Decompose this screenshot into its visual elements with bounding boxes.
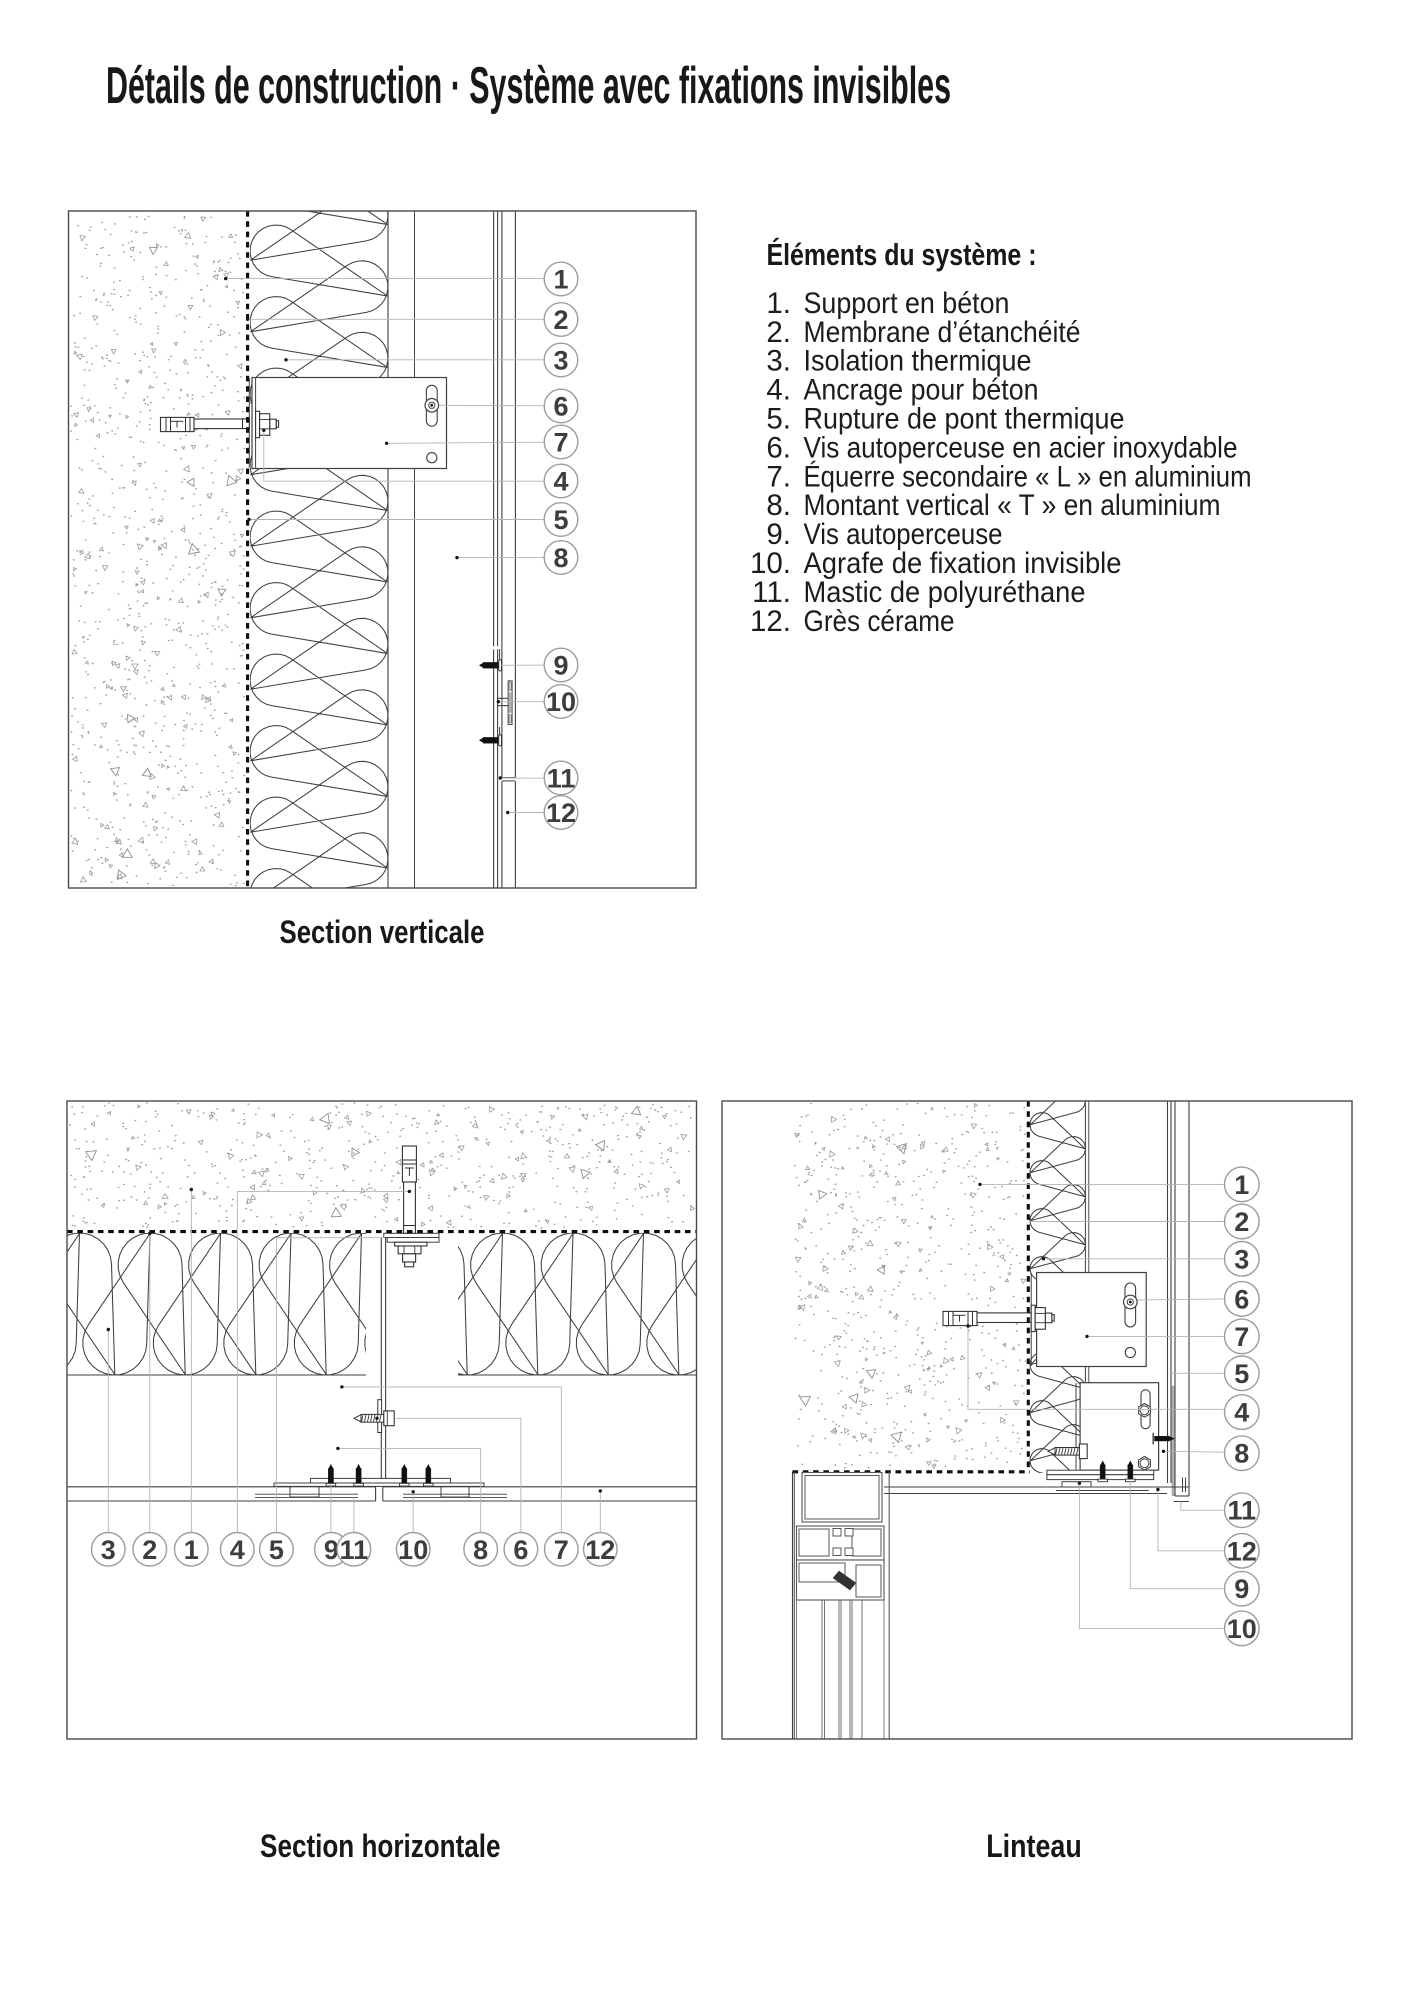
svg-text:3: 3	[553, 346, 568, 376]
svg-text:11: 11	[1228, 1496, 1257, 1526]
svg-text:12: 12	[585, 1535, 615, 1565]
svg-text:Section horizontale: Section horizontale	[260, 1828, 501, 1864]
svg-text:2: 2	[553, 305, 568, 335]
svg-text:3: 3	[1234, 1244, 1249, 1274]
svg-text:12.: 12.	[750, 605, 791, 638]
svg-text:6: 6	[1234, 1284, 1249, 1314]
svg-text:4: 4	[1234, 1398, 1249, 1428]
svg-text:2: 2	[1234, 1207, 1249, 1237]
svg-text:Grès cérame: Grès cérame	[804, 605, 955, 638]
svg-text:10: 10	[1227, 1614, 1257, 1644]
svg-text:7: 7	[554, 1535, 569, 1565]
svg-text:6: 6	[513, 1535, 528, 1565]
svg-text:11: 11	[547, 764, 576, 794]
svg-text:10: 10	[546, 687, 576, 717]
svg-text:10: 10	[398, 1535, 428, 1565]
svg-text:12: 12	[546, 798, 576, 828]
svg-text:6: 6	[553, 392, 568, 422]
svg-text:Éléments du système :: Éléments du système :	[767, 237, 1037, 272]
svg-text:12: 12	[1227, 1536, 1257, 1566]
svg-text:8: 8	[1234, 1439, 1249, 1469]
svg-text:9: 9	[1234, 1574, 1249, 1604]
svg-text:Détails de construction · Syst: Détails de construction · Système avec f…	[106, 57, 951, 115]
svg-text:9: 9	[553, 651, 568, 681]
svg-text:7: 7	[1234, 1322, 1249, 1352]
svg-text:8: 8	[553, 543, 568, 573]
svg-text:2: 2	[142, 1535, 157, 1565]
svg-text:4: 4	[553, 467, 568, 497]
svg-text:3: 3	[101, 1535, 116, 1565]
svg-text:1: 1	[553, 265, 568, 295]
svg-text:5: 5	[553, 505, 568, 535]
svg-text:11: 11	[340, 1535, 369, 1565]
svg-text:Section verticale: Section verticale	[280, 914, 485, 950]
svg-text:5: 5	[1234, 1359, 1249, 1389]
svg-text:Linteau: Linteau	[986, 1828, 1082, 1864]
svg-text:8: 8	[473, 1535, 488, 1565]
svg-text:1: 1	[184, 1535, 199, 1565]
svg-text:5: 5	[269, 1535, 284, 1565]
svg-text:7: 7	[553, 428, 568, 458]
svg-text:4: 4	[230, 1535, 245, 1565]
svg-text:1: 1	[1234, 1170, 1249, 1200]
